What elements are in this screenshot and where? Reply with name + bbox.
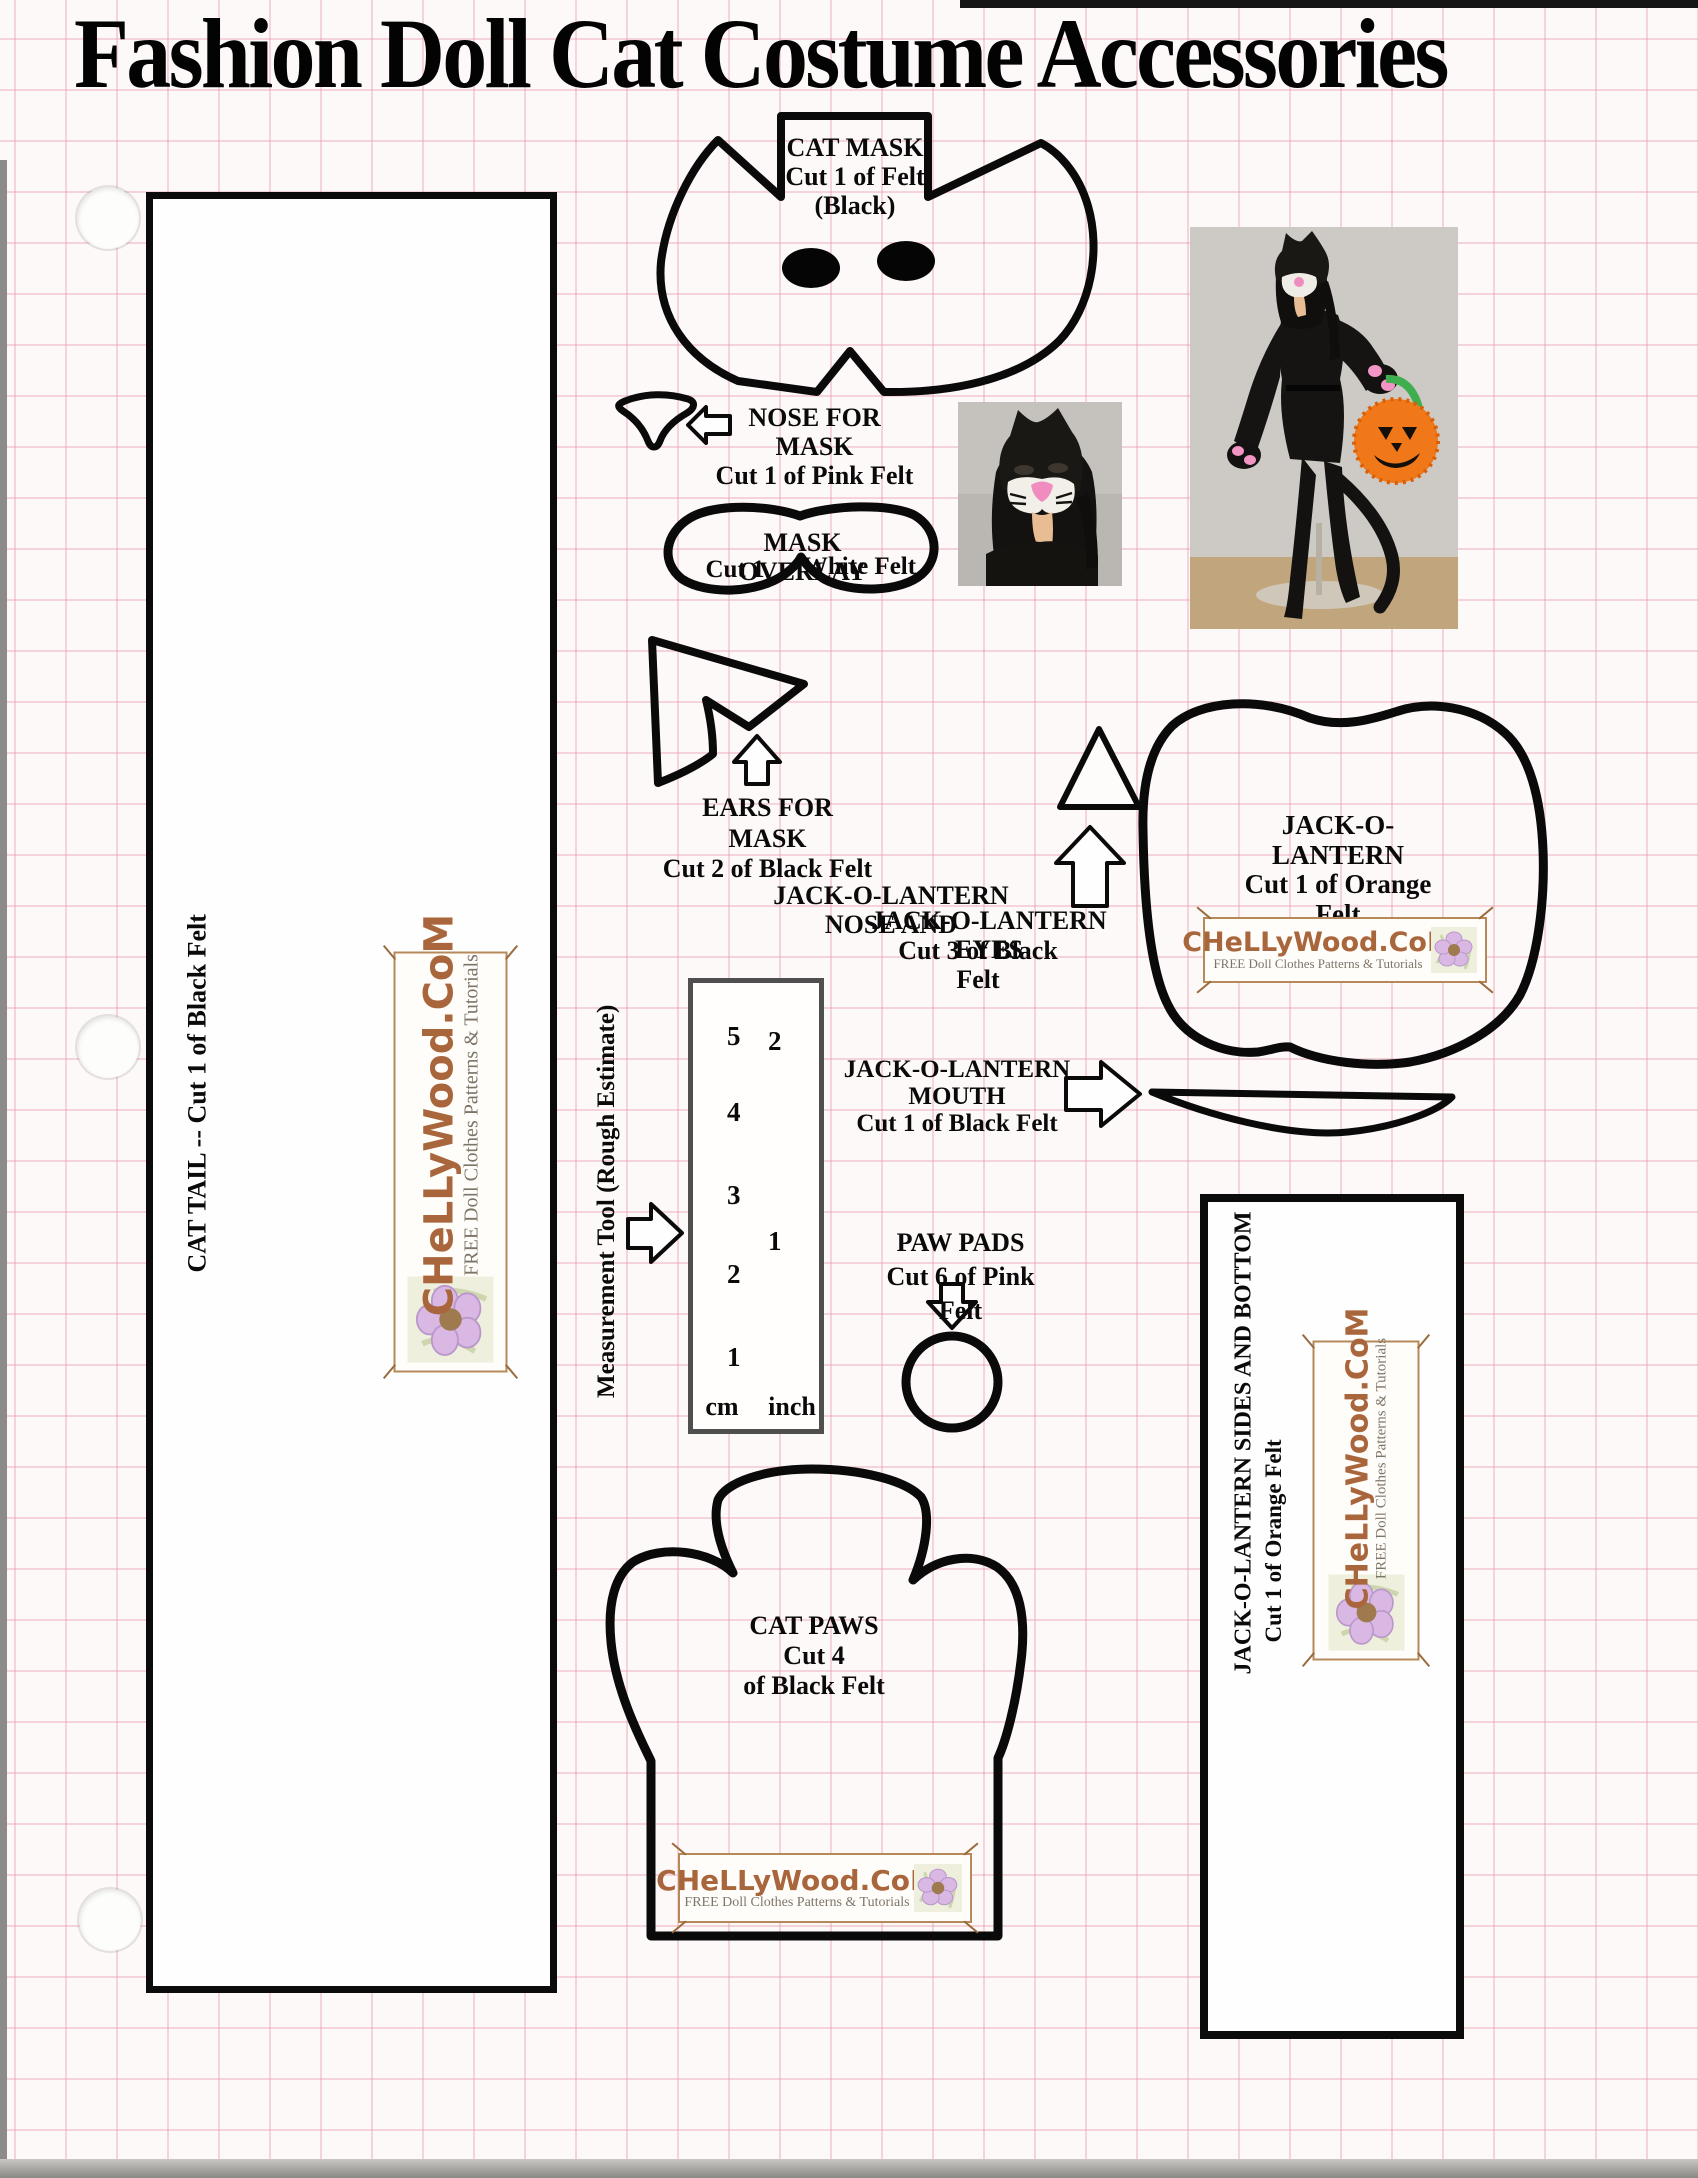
logo-pin xyxy=(1478,906,1493,919)
jol-mouth-outline xyxy=(1152,1092,1452,1133)
cat-mask-name: CAT MASK xyxy=(770,133,940,162)
cat-mask-eye-left xyxy=(782,248,840,288)
hole-punch-middle xyxy=(77,1016,139,1078)
nose-for-mask-label: NOSE FOR MASK Cut 1 of Pink Felt xyxy=(712,403,917,490)
paw-pads-name: PAW PADS xyxy=(868,1226,1053,1260)
page-title: Fashion Doll Cat Costume Accessories xyxy=(74,4,1447,104)
cat-paws-material: of Black Felt xyxy=(728,1673,900,1699)
chellywood-logo-title: CHeLLyWood.CoM xyxy=(419,914,461,1316)
chellywood-logo-title: CHeLLyWood.CoM xyxy=(1342,1308,1374,1610)
logo-pin xyxy=(1196,980,1211,993)
cat-mask-label: CAT MASK Cut 1 of Felt (Black) xyxy=(770,133,940,220)
cat-tail-label: CAT TAIL -- Cut 1 of Black Felt xyxy=(182,953,211,1273)
arrow-right-mouth xyxy=(1066,1062,1140,1126)
chellywood-logo-cat-tail: CHeLLyWood.CoM FREE Doll Clothes Pattern… xyxy=(394,952,508,1373)
nose-for-mask-name: NOSE FOR MASK xyxy=(712,403,917,461)
photo-doll-cat-mask-closeup xyxy=(958,402,1122,586)
arrow-up-ears xyxy=(734,736,780,784)
scan-edge-left xyxy=(0,160,7,2178)
logo-pin xyxy=(963,1920,978,1933)
logo-pin xyxy=(963,1842,978,1855)
nose-for-mask-outline xyxy=(619,395,694,447)
jack-o-lantern-cut: Cut 1 of Orange xyxy=(1243,870,1433,900)
logo-pin xyxy=(1478,980,1493,993)
ears-for-mask-name: EARS FOR MASK xyxy=(660,793,875,854)
chellywood-logo-subtitle: FREE Doll Clothes Patterns & Tutorials xyxy=(1213,957,1422,971)
nose-for-mask-cut: Cut 1 of Pink Felt xyxy=(712,461,917,490)
ruler-inch-2: 2 xyxy=(768,1028,782,1055)
ruler-inch-1: 1 xyxy=(768,1228,782,1255)
ruler-cm-2: 2 xyxy=(727,1261,741,1288)
scan-edge-bottom xyxy=(0,2159,1698,2178)
pattern-sheet: Fashion Doll Cat Costume Accessories CAT… xyxy=(0,0,1698,2178)
ruler-cm-label: cm xyxy=(698,1392,746,1421)
cat-paws-label: CAT PAWS Cut 4 of Black Felt xyxy=(728,1613,900,1699)
chellywood-logo-title: CHeLLyWood.CoM xyxy=(656,1866,938,1895)
measurement-ruler xyxy=(688,978,824,1434)
chellywood-logo-jol-sides: CHeLLyWood.CoM FREE Doll Clothes Pattern… xyxy=(1313,1341,1420,1661)
cat-paws-name: CAT PAWS xyxy=(728,1613,900,1639)
cat-paws-cut: Cut 4 xyxy=(728,1643,900,1669)
mask-overlay-cut: Cut 1 xyxy=(700,556,770,584)
jol-sides-name: JACK-O-LANTERN SIDES AND BOTTOM xyxy=(1231,1364,1258,1674)
chellywood-logo-paws: CHeLLyWood.CoM FREE Doll Clothes Pattern… xyxy=(678,1853,972,1923)
paw-pads-cut: Cut 6 of Pink Felt xyxy=(868,1260,1053,1328)
ruler-cm-4: 4 xyxy=(727,1099,741,1126)
jack-o-lantern-label: JACK-O-LANTERN Cut 1 of Orange Felt xyxy=(1243,811,1433,930)
ears-for-mask-label: EARS FOR MASK Cut 2 of Black Felt xyxy=(660,793,875,885)
jol-mouth-name: JACK-O-LANTERN MOUTH xyxy=(838,1056,1076,1110)
ruler-cm-1: 1 xyxy=(727,1344,741,1371)
logo-pin xyxy=(1196,906,1211,919)
chellywood-logo-title: CHeLLyWood.CoM xyxy=(1182,929,1454,957)
jol-mouth-label: JACK-O-LANTERN MOUTH Cut 1 of Black Felt xyxy=(838,1056,1076,1137)
arrow-up-jol xyxy=(1056,827,1124,906)
jol-nose-eyes-line3: Cut 3 of Black Felt xyxy=(888,936,1068,994)
ruler-inch-label: inch xyxy=(764,1392,820,1421)
cat-mask-eye-right xyxy=(877,241,935,281)
cat-mask-color: (Black) xyxy=(770,191,940,220)
logo-pin xyxy=(671,1842,686,1855)
hole-punch-bottom xyxy=(79,1889,141,1951)
paw-pads-circle-outline xyxy=(906,1336,998,1428)
jol-mouth-cut: Cut 1 of Black Felt xyxy=(838,1110,1076,1137)
jol-nose-triangle-outline xyxy=(1060,729,1139,807)
jol-sides-cut: Cut 1 of Orange Felt xyxy=(1261,1431,1287,1651)
chellywood-logo-subtitle: FREE Doll Clothes Patterns & Tutorials xyxy=(1374,1338,1391,1579)
ruler-cm-3: 3 xyxy=(727,1182,741,1209)
cat-mask-cut: Cut 1 of Felt xyxy=(770,162,940,191)
paw-pads-label: PAW PADS Cut 6 of Pink Felt xyxy=(868,1226,1053,1327)
hole-punch-top xyxy=(77,187,139,249)
arrow-right-ruler xyxy=(628,1204,682,1262)
scan-edge-top xyxy=(960,0,1698,8)
flower-icon xyxy=(1431,927,1477,973)
chellywood-logo-pumpkin: CHeLLyWood.CoM FREE Doll Clothes Pattern… xyxy=(1203,917,1487,983)
chellywood-logo-subtitle: FREE Doll Clothes Patterns & Tutorials xyxy=(684,1895,909,1910)
chellywood-logo-subtitle: FREE Doll Clothes Patterns & Tutorials xyxy=(461,954,483,1276)
photo-doll-cat-costume-full xyxy=(1190,227,1458,629)
mask-overlay-material: White Felt xyxy=(802,553,917,581)
jack-o-lantern-name: JACK-O-LANTERN xyxy=(1243,811,1433,870)
measurement-tool-label: Measurement Tool (Rough Estimate) xyxy=(593,1058,621,1398)
flower-icon xyxy=(914,1864,962,1912)
logo-pin xyxy=(671,1920,686,1933)
ruler-cm-5: 5 xyxy=(727,1023,741,1050)
ears-for-mask-outline xyxy=(652,640,804,783)
